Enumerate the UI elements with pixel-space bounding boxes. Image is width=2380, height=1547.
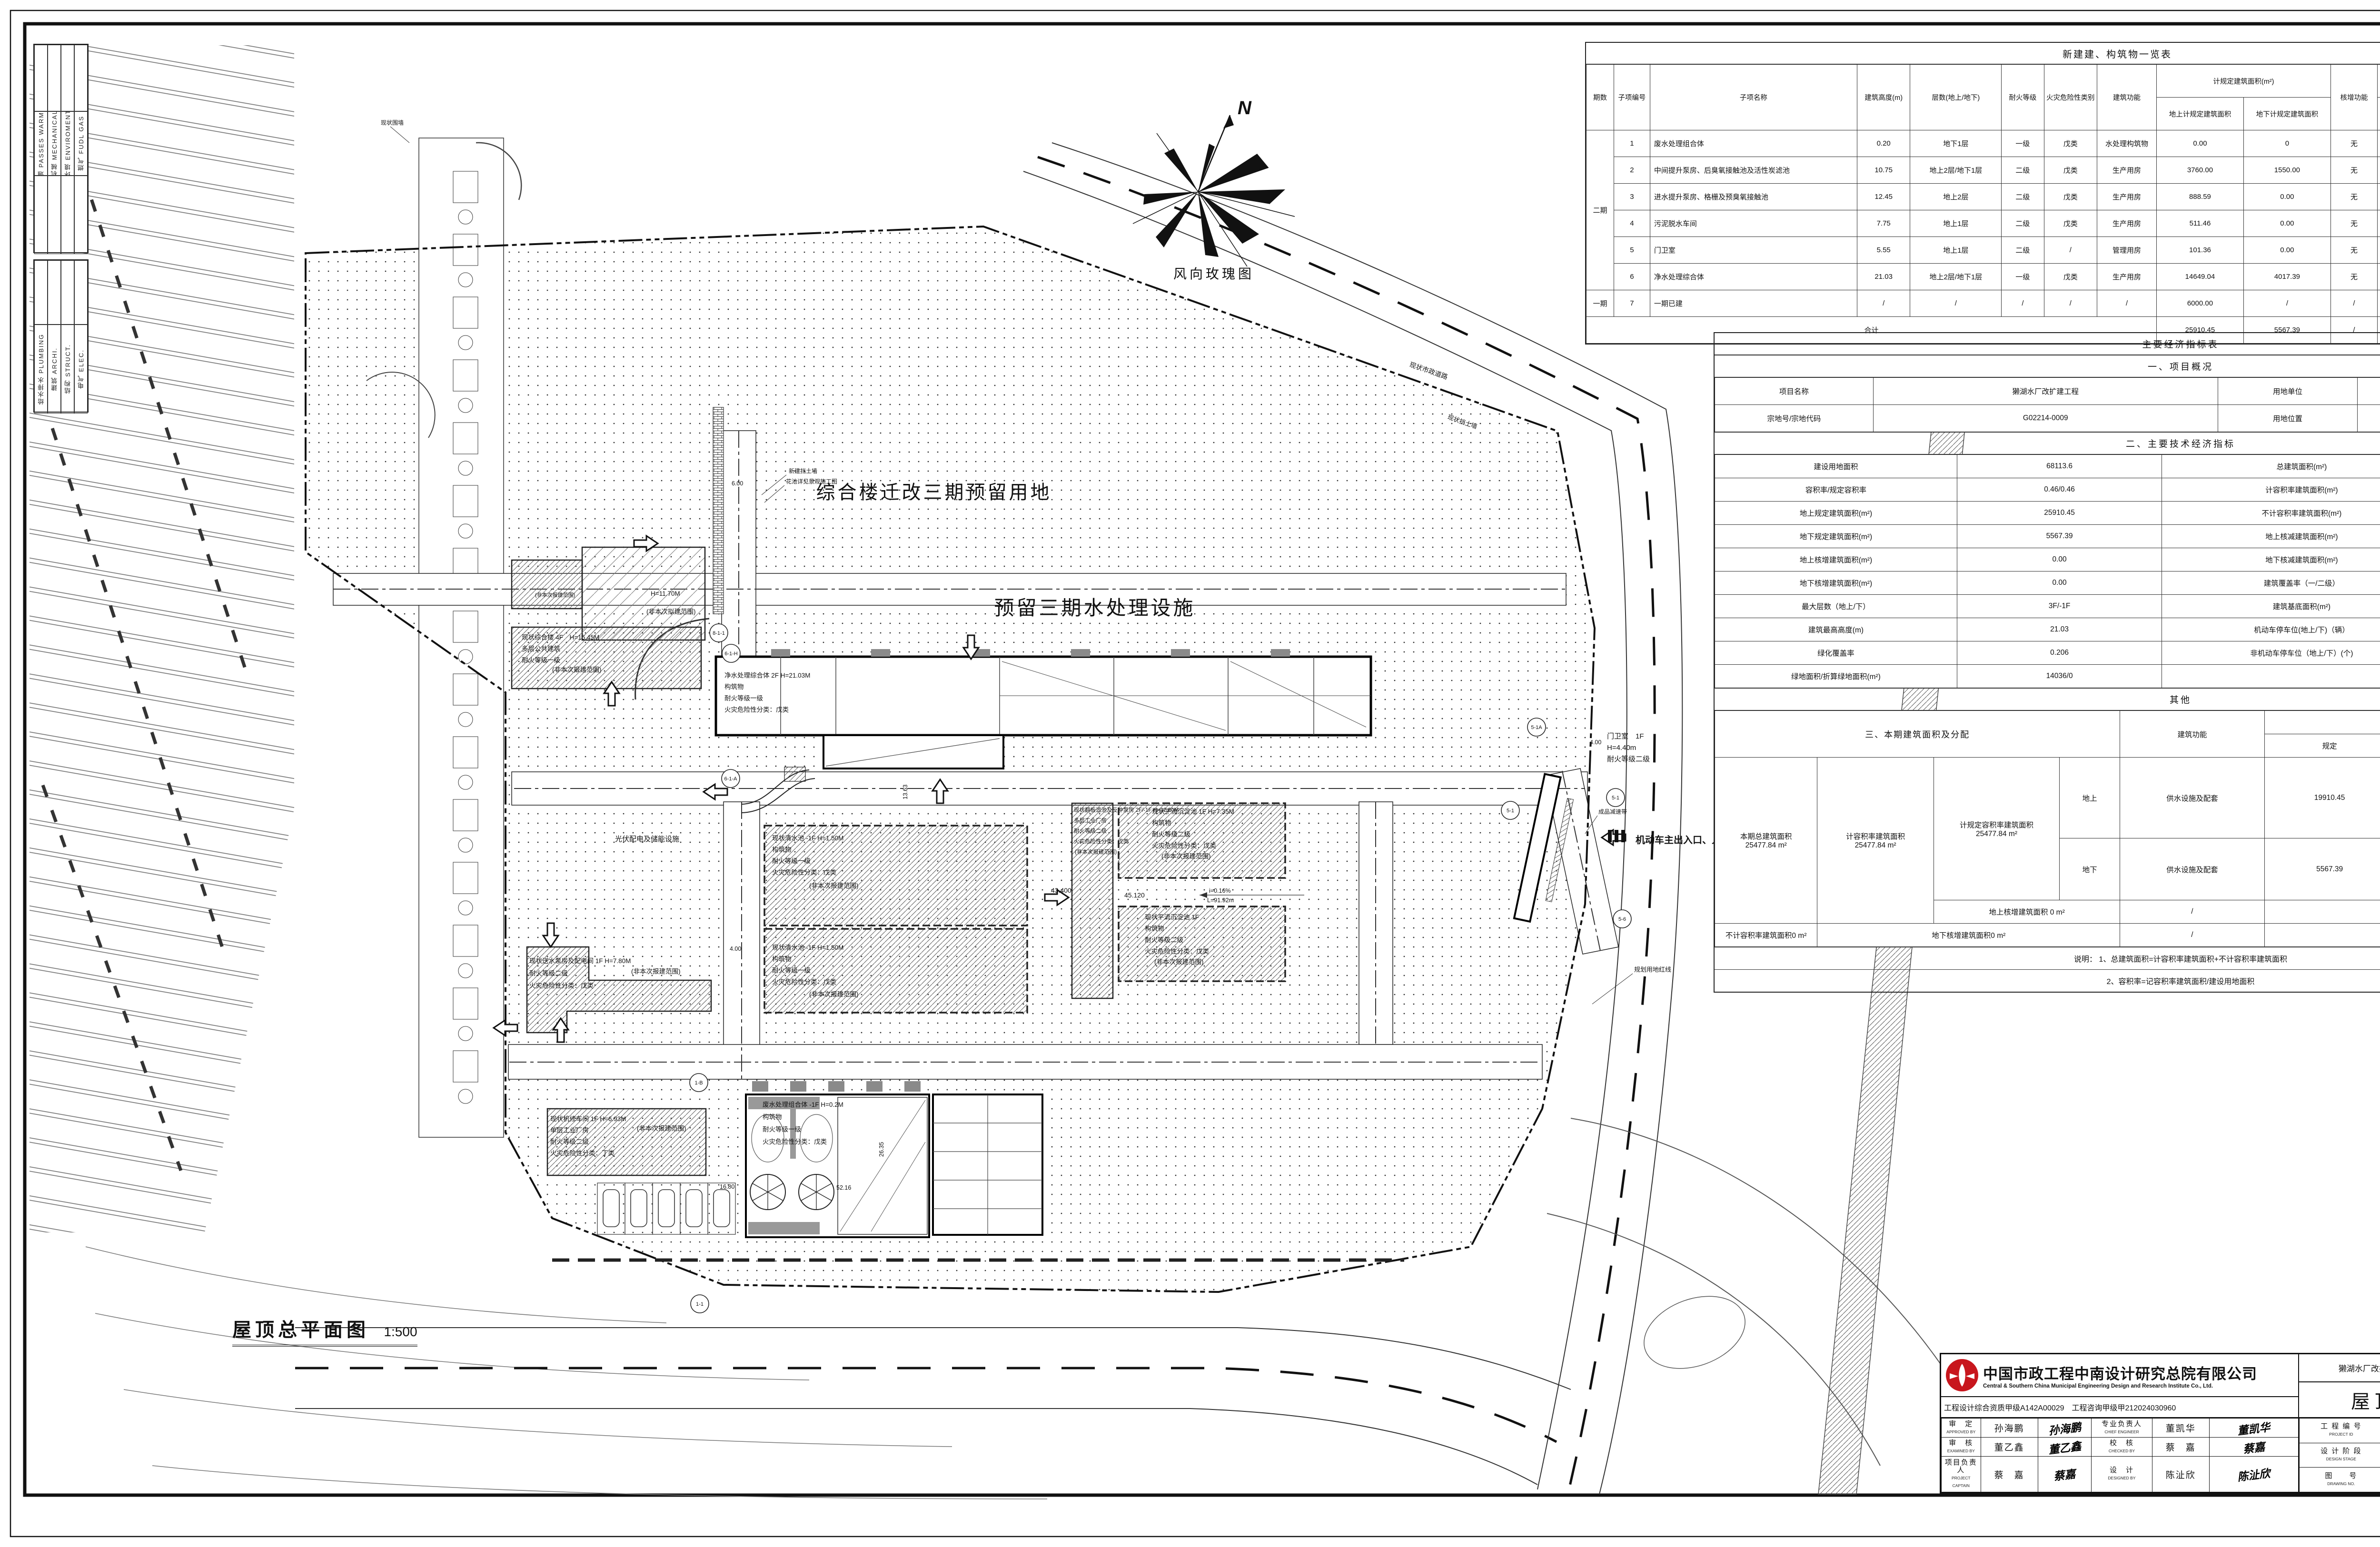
econ-section-3: 三、本期建筑面积及分配 [1715,711,2120,758]
svg-text:13.63: 13.63 [902,785,909,799]
svg-text:52.16: 52.16 [836,1184,851,1191]
approver-name: 蔡 嘉 [1981,1457,2038,1492]
section-marker: 5-1A [1531,725,1542,730]
building-row: 2中间提升泵房、后臭氧接触池及活性炭滤池10.75地上2层/地下1层二级戊类生产… [1587,157,2380,184]
project-name: 獭湖水厂改扩建工程设计采购施工总承包(EPC) [2299,1354,2380,1382]
flowerbed-label: 花池详见景观施工图 [786,478,837,485]
building-row: 一期7一期已建/////6000.00////6000.00 [1587,290,2380,317]
signature: 陈沚欣 [2237,1464,2271,1484]
svg-text:耐火等级二级: 耐火等级二级 [529,969,568,977]
signature: 董乙鑫 [2047,1437,2082,1457]
pv-area-label: 光伏配电及储能设施 [615,835,679,843]
svg-text:构筑物: 构筑物 [724,683,744,690]
ann-feishui: 废水处理组合体 -1F H=0.2M [763,1101,843,1108]
building-row: 5门卫室5.55地上1层二级/管理用房101.360.00无0.0099.50 [1587,237,2380,264]
svg-text:构筑物: 构筑物 [772,956,792,963]
econ-section-1: 一、项目概况 [1715,355,2380,377]
svg-text:4.00: 4.00 [730,946,741,952]
svg-text:4.00: 4.00 [1590,739,1601,746]
svg-text:火灾危险性分类：戊类: 火灾危险性分类：戊类 [1074,838,1129,845]
svg-text:火灾危险性分类：戊类: 火灾危险性分类：戊类 [772,868,836,876]
svg-text:45.120: 45.120 [1124,891,1145,899]
econ-note-2: 2、容积率=记容积率建筑面积/建设用地面积 [1715,969,2380,992]
indicator-row: 绿地面积/折算绿地面积(m²)14036/0 [1715,665,2380,688]
signature: 蔡嘉 [2053,1465,2077,1483]
svg-text:(非本次拟建范围): (非本次拟建范围) [646,608,696,615]
svg-text:耐火等级一级: 耐火等级一级 [522,656,560,664]
svg-text:(非本次报建范围): (非本次报建范围) [809,991,859,998]
overview-row: 宗地号/宗地代码G02214-0009用地位置龙岗镇同乐村 [1715,405,2380,432]
reserve-area-1-label: 综合楼迁改三期预留用地 [816,482,1052,503]
building-row: 6净水处理综合体21.03地上2层/地下1层一级戊类生产用房14649.0440… [1587,264,2380,290]
svg-text:火灾危险性分类：戊类: 火灾危险性分类：戊类 [529,982,594,989]
discipline-structure: 结构 STRUCT. [63,344,72,394]
svg-text:耐火等级一级: 耐火等级一级 [763,1125,801,1133]
approver-name: 孙海鹏 [1981,1419,2038,1438]
section-marker: 1-1 [696,1301,704,1307]
svg-text:耐火等级一级: 耐火等级一级 [772,966,811,974]
svg-text:火灾危险性分类：戊类: 火灾危险性分类：戊类 [1145,947,1209,955]
company-cell: 中国市政工程中南设计研究总院有限公司 Central & Southern Ch… [1941,1354,2299,1417]
discipline-environment: 环境 ENVIROMENT [63,111,72,176]
drawing-title: 屋顶总平面图 [2299,1382,2380,1417]
indicator-row: 容积率/规定容积率0.46/0.46计容积率建筑面积(m²)31477.84 [1715,478,2380,502]
alloc-far: 计容积率建筑面积25477.84 m² [1817,758,1934,924]
ann-sed-1: 现状平流沉淀池 1F H=7.35M [1152,808,1234,815]
signature: 蔡嘉 [2242,1438,2266,1456]
svg-text:耐火等级二级: 耐火等级二级 [1074,828,1107,834]
company-name-cn: 中国市政工程中南设计研究总院有限公司 [1983,1362,2257,1383]
alloc-far2: 计规定容积率建筑面积25477.84 m² [1934,758,2059,900]
section-marker: 5-1 [1612,795,1619,801]
svg-text:6.00: 6.00 [732,480,743,487]
indicator-row: 建筑最高高度(m)21.03机动车停车位(地上/下)（辆）40/0 [1715,618,2380,641]
svg-text:火灾危险性分类：戊类: 火灾危险性分类：戊类 [1152,842,1216,849]
svg-text:i=0.16%: i=0.16% [1209,887,1231,894]
economic-indicator-table: 主要经济指标表 一、项目概况 项目名称獭湖水厂改扩建工程用地单位深圳市深水龙岗水… [1714,332,2380,993]
discipline-electrical: 电气 ELEC. [77,349,86,389]
svg-text:26.35: 26.35 [878,1142,885,1157]
discipline-hvac: 暖通 PASSES WARMLY [37,111,46,176]
svg-text:耐火等级一级: 耐火等级一级 [772,857,811,865]
svg-text:L=91.92m: L=91.92m [1207,897,1234,904]
indicator-row: 地上核增建筑面积(m²)0.00地下核减建筑面积(m²)0.00 [1715,548,2380,572]
discipline-strip-2: 给水排水 PLUMBING 建筑 ARCHI. 结构 STRUCT. 电气 EL… [33,259,89,413]
discipline-strip-1: 暖通 PASSES WARMLY 机械 MECHANICAL 环境 ENVIRO… [33,44,89,253]
svg-text:耐火等级一级: 耐火等级一级 [724,694,763,702]
signature: 董凯华 [2237,1418,2271,1438]
svg-text:火灾危险性分类：丁类: 火灾危险性分类：丁类 [550,1149,615,1157]
svg-text:耐火等级二级: 耐火等级二级 [1152,830,1190,838]
fence-exist-label: 现状围墙 [381,119,404,126]
svg-text:构筑物: 构筑物 [763,1113,782,1121]
svg-text:(非本次报建范围): (非本次报建范围) [631,968,681,975]
overview-row: 项目名称獭湖水厂改扩建工程用地单位深圳市深水龙岗水务集团有限公司 [1715,378,2380,405]
alloc-total: 本期总建筑面积25477.84 m² [1715,758,1817,924]
approver-name: 董凯华 [2152,1419,2209,1438]
section-marker: 6-1-A [724,776,738,782]
signature: 孙海鹏 [2047,1418,2082,1438]
building-row: 4污泥脱水车间7.75地上1层二级戊类生产用房511.460.00无0.000.… [1587,210,2380,237]
company-name-en: Central & Southern China Municipal Engin… [1983,1383,2257,1389]
ann-repair: 现状机修车间 1F H=6.93M [550,1115,626,1123]
svg-text:火灾危险性分类：戊类: 火灾危险性分类：戊类 [724,706,789,713]
svg-text:多层工业厂房: 多层工业厂房 [1074,817,1107,824]
svg-text:H=4.40m: H=4.40m [1607,744,1636,752]
ann-jingshui: 净水处理综合体 2F H=21.03M [724,672,810,679]
indicator-row: 地上规定建筑面积(m²)25910.45不计容积率建筑面积(m²)0.00 [1715,502,2380,525]
section-marker: 5-6 [1618,916,1626,922]
svg-text:火灾危险性分类：戊类: 火灾危险性分类：戊类 [763,1138,827,1145]
south-road [295,1328,1571,1485]
approver-name: 蔡 嘉 [2152,1438,2209,1457]
company-logo [1945,1358,1979,1392]
west-road [419,138,504,1137]
caption-scale: 1:500 [384,1324,417,1339]
approval-row: 项目负责人PROJECT CAPTAIN蔡 嘉蔡嘉设 计DESIGNED BY陈… [1942,1457,2299,1492]
reserve-area-2-label: 预留三期水处理设施 [994,597,1195,619]
north-label: N [1238,98,1252,118]
indicator-row: 地下核增建筑面积(m²)0.00建筑覆盖率（一/二级）0.23 [1715,572,2380,595]
wall-new-label: 新建挡土墙 [789,467,817,474]
ann-clearwater-2: 现状清水池 -1F H=1.50M [772,944,843,951]
building-list-table: 新建建、构筑物一览表 期数 子项编号 子项名称 建筑高度(m) 层数(地上/地下… [1585,42,2380,345]
title-block: 中国市政工程中南设计研究总院有限公司 Central & Southern Ch… [1940,1353,2380,1494]
svg-text:耐火等级二级: 耐火等级二级 [1607,755,1650,763]
company-cert: 工程设计综合资质甲级A142A00029 工程咨询甲级甲212024030960 [1941,1396,2298,1417]
meta-grid: 工 程 编 号PROJECT ID 2025DS-150 日 期DATE 202… [2299,1418,2380,1492]
indicator-row: 最大层数（地上/下）3F/-1F建筑基底面积(m²)15585.2 [1715,595,2380,618]
svg-text:构筑物: 构筑物 [1152,819,1171,827]
econ-section-2: 二、主要技术经济指标 [1715,432,2380,454]
drawing-sheet: N 风向玫瑰图 综合楼迁改三期预留用地 预留三期水处理设施 光伏配电及储能设施 … [0,0,2380,1547]
approver-name: 董乙鑫 [1981,1438,2038,1457]
building-table-title: 新建建、构筑物一览表 [1587,43,2380,64]
ann-gate: 门卫室 1F [1607,732,1644,740]
econ-note-1: 说明： 1、总建筑面积=计容积率建筑面积+不计容积率建筑面积 [1715,947,2380,969]
discipline-mechanical: 机械 MECHANICAL [50,111,59,176]
svg-text:43.400: 43.400 [1051,887,1071,894]
section-marker: 8-1-1 [713,631,725,636]
discipline-plumbing: 给水排水 PLUMBING [37,334,46,405]
approval-row: 审 核EXAMINED BY董乙鑫董乙鑫校 核CHECKED BY蔡 嘉蔡嘉 [1942,1438,2299,1457]
discipline-gas: 燃气 FUDL GAS [77,116,86,171]
ann-clearwater-1: 现状清水池 -1F H=1.50M [772,835,843,842]
svg-text:火灾危险性分类：戊类: 火灾危险性分类：戊类 [772,978,836,985]
svg-text:(非本次报建范围): (非本次报建范围) [552,666,602,673]
redline-label: 规划用地红线 [1634,966,1671,973]
allocation-table: 三、本期建筑面积及分配 建筑功能 建筑面积m² 规定 核减 合计 本期总建筑面积… [1715,710,2380,947]
table-header-row: 期数 子项编号 子项名称 建筑高度(m) 层数(地上/地下) 耐火等级 火灾危险… [1587,64,2380,98]
wind-rose: N 风向玫瑰图 [1133,98,1295,281]
svg-text:(非本次报建范围): (非本次报建范围) [637,1125,686,1132]
svg-text:(非本次报建范围): (非本次报建范围) [1154,958,1204,966]
discipline-architecture: 建筑 ARCHI. [50,347,59,391]
svg-text:16.80: 16.80 [720,1183,734,1190]
ann-sed-2: 现状平流沉淀池 1F [1145,914,1199,921]
indicator-row: 地下规定建筑面积(m²)5567.39地上核减建筑面积(m²)0.00 [1715,525,2380,548]
road-exist-label: 现状市政道路 [1408,361,1449,381]
svg-text:耐火等级二级: 耐火等级二级 [1145,936,1183,944]
speedbump-label: 成品减速带 [1598,808,1627,815]
section-marker: 5-1 [1507,808,1514,814]
svg-text:耐火等级二级: 耐火等级二级 [550,1138,589,1145]
econ-other: 其他 [1715,688,2380,710]
project-cell: 獭湖水厂改扩建工程设计采购施工总承包(EPC) 屋顶总平面图 [2299,1354,2380,1417]
drawing-caption: 屋顶总平面图 1:500 [232,1314,417,1347]
svg-text:(非本次报建范围): (非本次报建范围) [809,882,859,889]
building-row: 3进水提升泵房、格栅及预臭氧接触池12.45地上2层二级戊类生产用房888.59… [1587,184,2380,210]
svg-text:(非本次报建范围): (非本次报建范围) [1075,848,1117,855]
approval-row: 审 定APPROVED BY孙海鹏孙海鹏专业负责人CHIEF ENGINEER董… [1942,1419,2299,1438]
ann-zhs: 现状综合楼 4F H=15.45M [522,634,599,641]
svg-text:多层公共建筑: 多层公共建筑 [522,645,560,652]
svg-text:(非本次报建范围): (非本次报建范围) [535,591,575,598]
svg-text:构筑物: 构筑物 [772,846,792,853]
entrance-bars [1608,830,1625,842]
wind-rose-label: 风向玫瑰图 [1173,266,1254,281]
approval-grid: 审 定APPROVED BY孙海鹏孙海鹏专业负责人CHIEF ENGINEER董… [1941,1418,2299,1492]
caption-title: 屋顶总平面图 [232,1320,369,1340]
section-marker: 6-1-H [724,651,738,657]
building-row: 二期1废水处理组合体0.20地下1层一级戊类水处理构筑物0.000无0.000.… [1587,130,2380,157]
ann-wall: H=11.70M [651,590,680,597]
svg-text:构筑物: 构筑物 [1145,925,1164,932]
indicator-row: 建设用地面积68113.6总建筑面积(m²)31477.84 [1715,455,2380,478]
econ-title: 主要经济指标表 [1715,333,2380,355]
section-marker: 1-B [694,1080,703,1086]
indicator-row: 绿化覆盖率0.206非机动车停车位（地上/下）(个)10 [1715,641,2380,665]
approver-name: 陈沚欣 [2152,1457,2209,1492]
svg-text:(非本次报建范围): (非本次报建范围) [1161,853,1211,860]
svg-text:单层工业厂房: 单层工业厂房 [550,1127,589,1134]
ann-pump: 现状送水泵房及配电间 1F H=7.80M [529,957,631,965]
